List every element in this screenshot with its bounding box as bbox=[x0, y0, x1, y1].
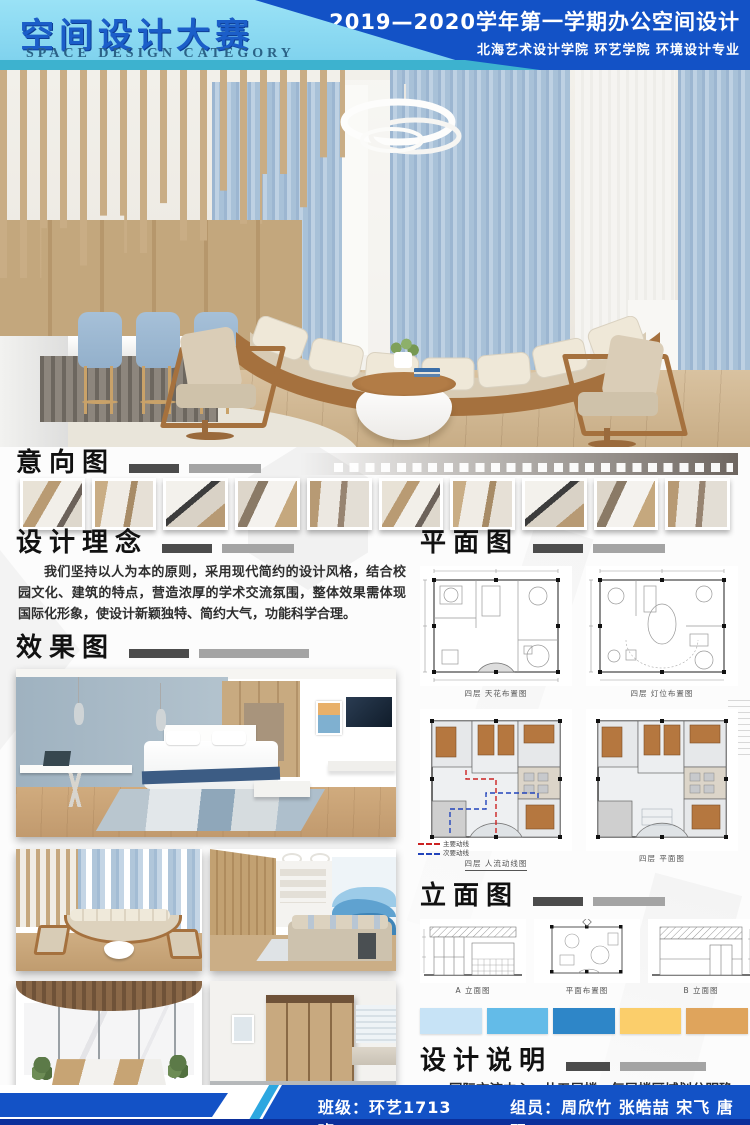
bathroom-mirror bbox=[356, 1005, 396, 1043]
concept-title-row: 设计理念 bbox=[16, 530, 408, 556]
intent-thumb bbox=[235, 478, 300, 530]
footer-banner: 班级：环艺1713班 组员：周欣竹 张皓喆 宋飞 唐羽 bbox=[0, 1085, 750, 1125]
bedroom-desk bbox=[20, 765, 132, 773]
render-lobby bbox=[16, 849, 202, 971]
intent-thumb bbox=[450, 478, 515, 530]
plans-color-row: 主要动线次要动线 四层 人流动线图 bbox=[420, 709, 748, 871]
table-books bbox=[414, 368, 440, 377]
floor-plan-circulation: 主要动线次要动线 四层 人流动线图 bbox=[420, 709, 572, 871]
floor-plan-lighting: 四层 灯位布置图 bbox=[586, 566, 738, 699]
armchair bbox=[570, 336, 696, 447]
elevation-plan-key: 平面布置图 bbox=[534, 919, 640, 996]
palette-row bbox=[420, 1008, 748, 1034]
plan-caption: 四层 天花布置图 bbox=[420, 688, 572, 699]
elevation-caption: 平面布置图 bbox=[534, 985, 640, 996]
description-title-row: 设计说明 bbox=[420, 1048, 748, 1074]
section-title: 意向图 bbox=[16, 450, 115, 476]
section-title: 平面图 bbox=[420, 530, 519, 556]
bar-stool bbox=[78, 312, 122, 374]
poster-subtitle: SPACE DESIGN CATEGORY bbox=[26, 46, 295, 62]
members-label: 组员：周欣竹 张皓喆 宋飞 唐羽 bbox=[510, 1094, 750, 1125]
route-legend: 主要动线次要动线 bbox=[418, 840, 469, 860]
header-banner: 2019—2020学年第一学期办公空间设计 北海艺术设计学院 环艺学院 环境设计… bbox=[0, 0, 750, 70]
ring-chandelier bbox=[320, 84, 490, 174]
footer-left-bar bbox=[0, 1093, 228, 1117]
title-bars bbox=[533, 897, 665, 909]
section-title: 设计理念 bbox=[16, 530, 148, 556]
left-column: 设计理念 我们坚持以人为本的原则，采用现代简约的设计风格，结合校园文化、建筑的特… bbox=[16, 530, 408, 1107]
right-column: 平面图 bbox=[420, 530, 748, 1125]
section-intent: 意向图 bbox=[0, 448, 750, 528]
intent-thumb bbox=[92, 478, 157, 530]
floor-plan-layout: 四层 平面图 bbox=[586, 709, 738, 871]
legend-label: 主要动线 bbox=[443, 840, 469, 850]
section-title: 效果图 bbox=[16, 635, 115, 661]
render-lounge-mural bbox=[210, 849, 396, 971]
color-swatch bbox=[686, 1008, 748, 1034]
elevation-b: B 立面图 bbox=[648, 919, 750, 996]
footer-text: 班级：环艺1713班 组员：周欣竹 张皓喆 宋飞 唐羽 bbox=[318, 1094, 750, 1125]
armchair bbox=[168, 328, 280, 440]
intent-thumb bbox=[163, 478, 228, 530]
section-title: 设计说明 bbox=[420, 1048, 552, 1074]
elevations-row: A 立面图 平面布置图 bbox=[420, 919, 748, 996]
section-title: 立面图 bbox=[420, 883, 519, 909]
title-bars bbox=[162, 544, 294, 556]
color-swatch bbox=[487, 1008, 549, 1034]
title-bars bbox=[129, 464, 261, 476]
concept-paragraph: 我们坚持以人为本的原则，采用现代简约的设计风格，结合校园文化、建筑的特点，营造浓… bbox=[18, 562, 406, 625]
elevation-caption: B 立面图 bbox=[648, 985, 750, 996]
poster-page: 2019—2020学年第一学期办公空间设计 北海艺术设计学院 环艺学院 环境设计… bbox=[0, 0, 750, 1125]
film-strip-decoration bbox=[300, 453, 738, 475]
color-swatch bbox=[553, 1008, 615, 1034]
plan-caption: 四层 平面图 bbox=[586, 853, 738, 864]
wall-art bbox=[316, 701, 342, 735]
bedroom-tv bbox=[346, 697, 392, 727]
elevation-caption: A 立面图 bbox=[420, 985, 526, 996]
legend-row: 主要动线 bbox=[418, 840, 469, 850]
renders-title-row: 效果图 bbox=[16, 635, 408, 661]
intent-title-row: 意向图 bbox=[16, 450, 261, 476]
intent-thumb bbox=[379, 478, 444, 530]
title-bars bbox=[566, 1062, 706, 1074]
laptop bbox=[43, 751, 71, 766]
plans-line-row: 四层 天花布置图 bbox=[420, 566, 748, 699]
plans-title-row: 平面图 bbox=[420, 530, 748, 556]
plan-caption: 四层 灯位布置图 bbox=[586, 688, 738, 699]
intent-thumb bbox=[522, 478, 587, 530]
legend-dash bbox=[418, 853, 440, 855]
legend-row: 次要动线 bbox=[418, 849, 469, 859]
course-title: 2019—2020学年第一学期办公空间设计 bbox=[329, 6, 740, 36]
intent-thumb bbox=[665, 478, 730, 530]
title-bars bbox=[129, 649, 309, 661]
color-swatch bbox=[420, 1008, 482, 1034]
class-label: 班级：环艺1713班 bbox=[318, 1094, 468, 1125]
intent-thumb bbox=[20, 478, 85, 530]
intent-thumb bbox=[594, 478, 659, 530]
bowl-coffee-table bbox=[352, 366, 456, 446]
intent-thumb bbox=[307, 478, 372, 530]
render-bedroom bbox=[16, 669, 396, 837]
render-grid bbox=[16, 849, 408, 1107]
elevation-a: A 立面图 bbox=[420, 919, 526, 996]
color-swatch bbox=[620, 1008, 682, 1034]
title-bars bbox=[533, 544, 665, 556]
hero-render-image bbox=[0, 70, 750, 447]
legend-label: 次要动线 bbox=[443, 849, 469, 859]
floor-plan-ceiling: 四层 天花布置图 bbox=[420, 566, 572, 699]
intent-thumbnails bbox=[20, 478, 730, 530]
toilet-stalls bbox=[266, 995, 354, 1087]
plan-caption: 四层 人流动线图 bbox=[465, 858, 528, 871]
elevations-title-row: 立面图 bbox=[420, 883, 748, 909]
legend-dash bbox=[418, 843, 440, 845]
